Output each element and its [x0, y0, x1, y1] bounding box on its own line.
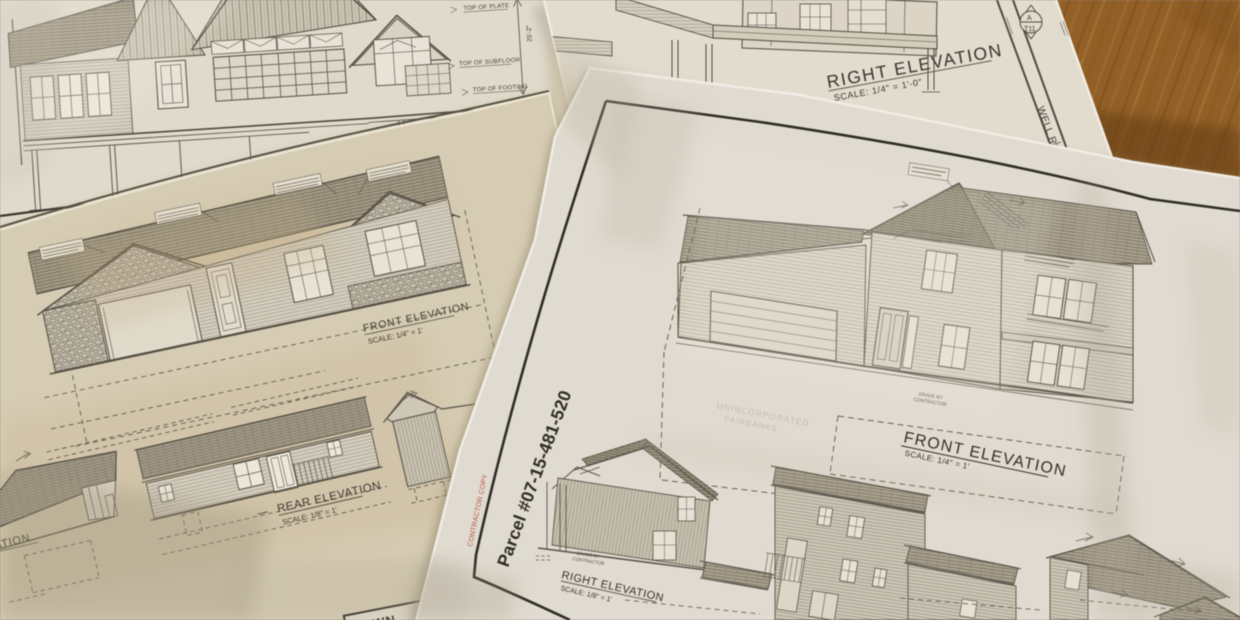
svg-text:25'-2": 25'-2": [526, 24, 534, 42]
svg-text:T11: T11: [1024, 26, 1036, 33]
svg-text:A: A: [1027, 15, 1032, 22]
